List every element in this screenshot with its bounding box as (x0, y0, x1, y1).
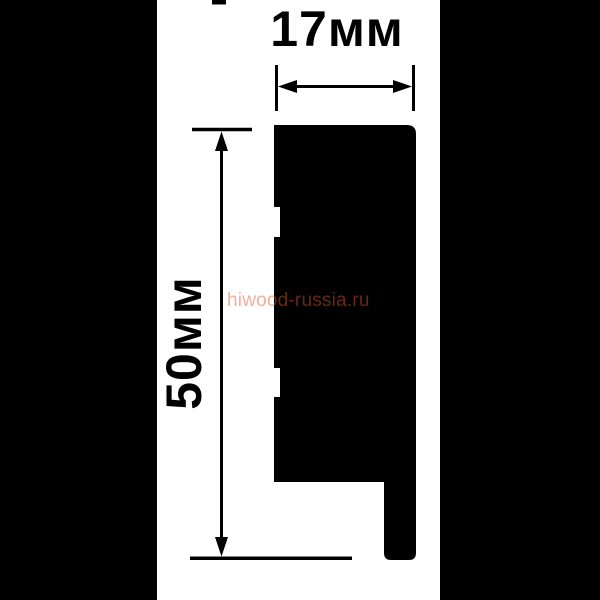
diagram-canvas: 17мм 50мм hiwood-russia.ru (0, 0, 600, 600)
watermark-text: hiwood-russia.ru (227, 291, 370, 310)
arrow-right-icon (393, 80, 412, 93)
width-dimension-label: 17мм (237, 4, 437, 54)
arrow-down-icon (215, 537, 228, 557)
top-crop-mark (212, 0, 226, 5)
skirting-profile-shape (274, 125, 416, 560)
width-dimension (277, 65, 414, 111)
arrow-up-icon (215, 132, 228, 152)
arrow-left-icon (278, 80, 297, 93)
height-dimension-label: 50мм (159, 243, 209, 443)
